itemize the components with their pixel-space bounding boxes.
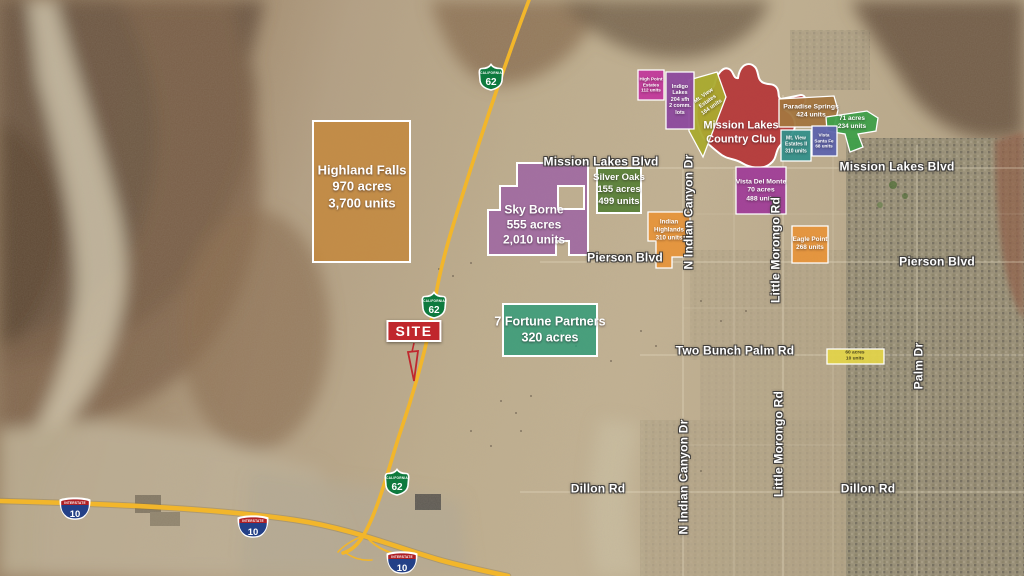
svg-text:10: 10 xyxy=(248,527,259,538)
parcel-line: 268 units xyxy=(793,244,828,252)
site-marker: SITE xyxy=(386,320,441,342)
road-label-pierson-blvd-west: Pierson Blvd xyxy=(587,251,663,266)
parcel-silver-oaks-label: Silver Oaks 155 acres 499 units xyxy=(593,172,645,208)
parcel-line: 155 acres xyxy=(593,184,645,196)
road-label-n-indian-canyon-dr-north: N Indian Canyon Dr xyxy=(682,155,697,270)
road-label-n-indian-canyon-dr-south: N Indian Canyon Dr xyxy=(677,420,692,535)
road-label-pierson-blvd-east: Pierson Blvd xyxy=(899,255,975,270)
parcel-paradise-springs-label: Paradise Springs 424 units xyxy=(783,104,839,121)
road-label-little-morongo-rd-north: Little Morongo Rd xyxy=(769,197,784,303)
parcel-line: 499 units xyxy=(593,196,645,208)
road-label-palm-dr: Palm Dr xyxy=(912,343,927,390)
parcel-mt-view-estates-ii-label: Mt. View Estates II 310 units xyxy=(785,136,807,155)
svg-text:CALIFORNIA: CALIFORNIA xyxy=(480,71,502,75)
svg-text:10: 10 xyxy=(70,509,81,520)
parcel-line: 68 units xyxy=(814,144,833,150)
parcel-line: 970 acres xyxy=(318,179,407,195)
parcel-line: Mission Lakes xyxy=(703,119,778,133)
road-label-dillon-rd-east: Dillon Rd xyxy=(841,482,895,497)
site-label: SITE xyxy=(395,323,432,339)
parcel-line: Eagle Point xyxy=(793,236,828,244)
svg-text:INTERSTATE: INTERSTATE xyxy=(242,519,264,523)
parcel-vista-santa-fe-label: Vista Santa Fe 68 units xyxy=(814,132,833,149)
svg-text:INTERSTATE: INTERSTATE xyxy=(391,555,413,559)
svg-text:10: 10 xyxy=(397,563,408,574)
parcel-indigo-lakes-label: Indigo Lakes 204 sfh 2 comm. lots xyxy=(669,84,691,116)
parcel-line: Country Club xyxy=(703,133,778,147)
road-label-mission-lakes-blvd-east: Mission Lakes Blvd xyxy=(840,160,955,175)
parcel-line: 310 units xyxy=(654,234,684,242)
parcel-line: Highland Falls xyxy=(318,163,407,179)
parcel-line: 7 Fortune Partners xyxy=(494,314,605,330)
parcel-indian-highlands-label: Indian Highlands 310 units xyxy=(654,218,684,241)
parcel-eagle-point-label: Eagle Point 268 units xyxy=(793,236,828,252)
parcel-line: Silver Oaks xyxy=(593,172,645,184)
parcel-sky-borne-label: Sky Borne 555 acres 2,010 units xyxy=(503,203,565,248)
parcel-line: 3,700 units xyxy=(318,195,407,211)
parcel-line: lots xyxy=(669,110,691,116)
parcel-line: 424 units xyxy=(783,112,839,120)
ca62-shield: CALIFORNIA 62 xyxy=(479,65,502,91)
parcel-60-acres-label: 60 acres 10 units xyxy=(845,350,864,361)
parcel-line: 2,010 units xyxy=(503,233,565,248)
parcel-line: 71 acres xyxy=(838,115,866,123)
parcel-line: Indian xyxy=(654,218,684,226)
parcel-line: Sky Borne xyxy=(503,203,565,218)
svg-text:CALIFORNIA: CALIFORNIA xyxy=(386,476,408,480)
parcel-line: 2 comm. xyxy=(669,103,691,109)
road-label-two-bunch-palm-rd: Two Bunch Palm Rd xyxy=(676,344,795,359)
svg-text:62: 62 xyxy=(485,77,497,88)
parcel-line: 70 acres xyxy=(736,187,787,195)
parcel-line: Estates II xyxy=(785,142,807,148)
ca62-shield: CALIFORNIA 62 xyxy=(422,293,445,319)
parcel-line: 555 acres xyxy=(503,218,565,233)
road-label-mission-lakes-blvd-west: Mission Lakes Blvd xyxy=(544,155,659,170)
map-screenshot: CALIFORNIA 62 CALIFORNIA 62 CALIFORNIA 6… xyxy=(0,0,1024,576)
parcel-line: 60 acres xyxy=(845,350,864,356)
parcel-line: Highlands xyxy=(654,226,684,234)
parcel-line: 310 units xyxy=(785,148,807,154)
parcel-line: High Point xyxy=(640,76,663,82)
parcel-highland-falls-label: Highland Falls 970 acres 3,700 units xyxy=(318,163,407,212)
parcel-line: 234 units xyxy=(838,123,866,131)
svg-text:CALIFORNIA: CALIFORNIA xyxy=(423,299,445,303)
parcel-7-fortune-partners-label: 7 Fortune Partners 320 acres xyxy=(494,314,605,345)
ca62-shield: CALIFORNIA 62 xyxy=(385,470,408,496)
parcel-line: 10 units xyxy=(845,356,864,362)
parcel-high-point-estates-label: High Point Estates 112 units xyxy=(640,76,663,93)
road-label-dillon-rd-west: Dillon Rd xyxy=(571,482,625,497)
parcel-71-acres-label: 71 acres 234 units xyxy=(838,115,866,131)
svg-text:62: 62 xyxy=(391,482,403,493)
road-label-little-morongo-rd-south: Little Morongo Rd xyxy=(772,391,787,497)
svg-text:62: 62 xyxy=(428,305,440,316)
parcel-line: 112 units xyxy=(640,88,663,94)
svg-text:INTERSTATE: INTERSTATE xyxy=(64,501,86,505)
parcel-mission-lakes-cc-label: Mission Lakes Country Club xyxy=(703,119,778,147)
parcel-line: 320 acres xyxy=(494,330,605,346)
